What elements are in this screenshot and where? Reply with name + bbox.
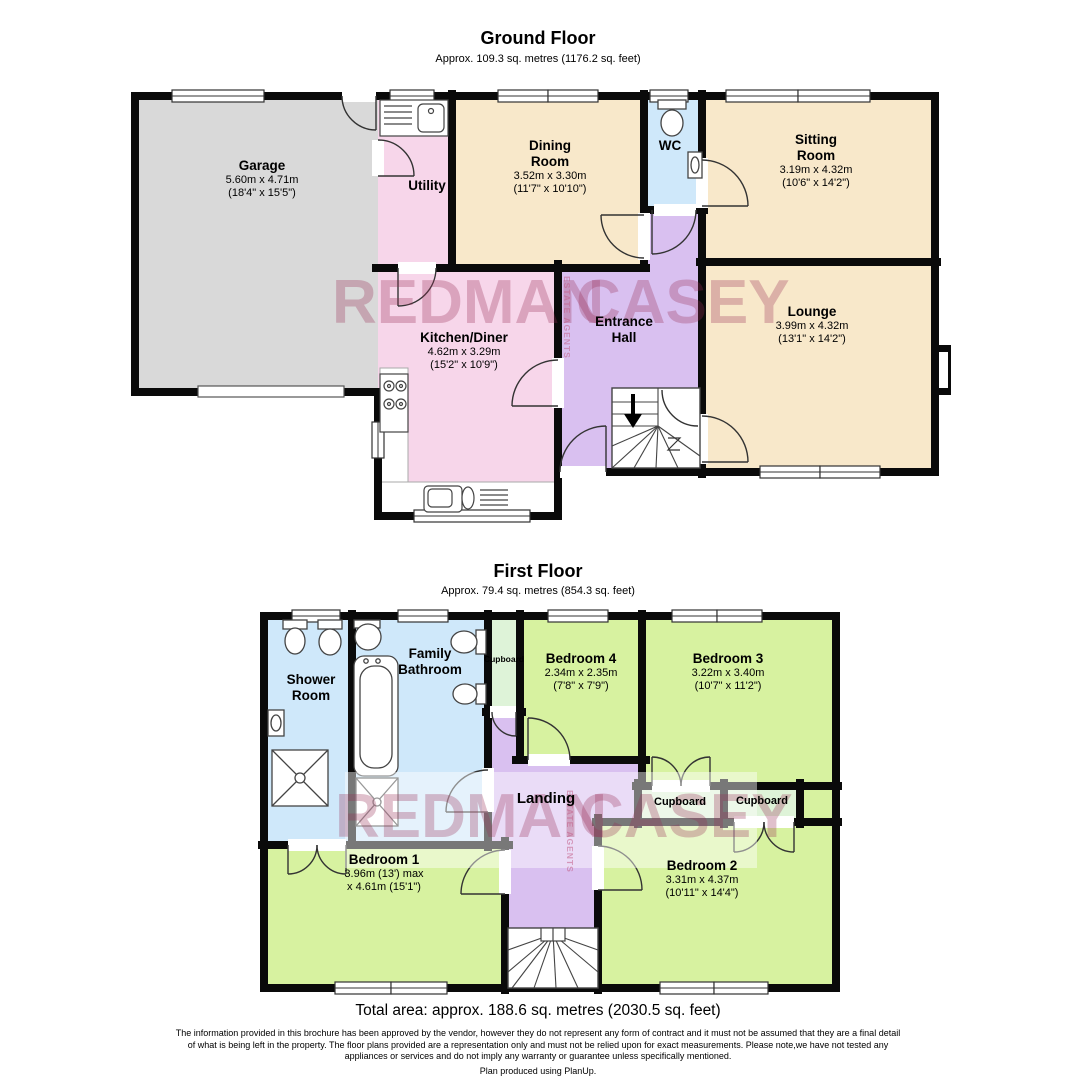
room-label-kitchen-diner: Kitchen/Diner 4.62m x 3.29m (15'2" x 10'…: [420, 330, 508, 372]
room-label-bedroom3: Bedroom 3 3.22m x 3.40m (10'7" x 11'2"): [692, 651, 765, 693]
bedroom2-dim-imperial: (10'11" x 14'4"): [666, 887, 739, 900]
dining-name-1: Dining: [514, 138, 587, 154]
ground-staircase: [612, 388, 700, 468]
shower-name-1: Shower: [287, 672, 336, 688]
garage-name: Garage: [226, 158, 299, 174]
watermark-estate-agents-ground: ESTATE AGENTS: [562, 276, 572, 359]
room-label-bedroom2: Bedroom 2 3.31m x 4.37m (10'11" x 14'4"): [666, 858, 739, 900]
hall-name-2: Hall: [595, 330, 653, 346]
bedroom3-dim-imperial: (10'7" x 11'2"): [692, 680, 765, 693]
ground-floor-subtitle: Approx. 109.3 sq. metres (1176.2 sq. fee…: [435, 53, 640, 65]
room-label-entrance-hall: Entrance Hall: [595, 314, 653, 346]
total-area-text: Total area: approx. 188.6 sq. metres (20…: [355, 1002, 720, 1020]
first-staircase: [508, 928, 598, 988]
bedroom4-dim-imperial: (7'8" x 7'9"): [545, 680, 618, 693]
wc-name: WC: [659, 138, 682, 154]
landing-name: Landing: [517, 790, 575, 808]
garage-dim-metric: 5.60m x 4.71m: [226, 174, 299, 187]
utility-name: Utility: [408, 178, 446, 194]
disclaimer-text: The information provided in this brochur…: [175, 1028, 901, 1063]
room-label-family-bathroom: Family Bathroom: [398, 646, 462, 678]
cupboard-left-name: Cupboard: [654, 796, 706, 809]
garage-door: [198, 386, 344, 397]
dining-dim-metric: 3.52m x 3.30m: [514, 170, 587, 183]
cupboard-right-name: Cupboard: [736, 795, 788, 808]
ground-floor-title: Ground Floor: [481, 28, 596, 49]
bedroom3-dim-metric: 3.22m x 3.40m: [692, 667, 765, 680]
room-label-lounge: Lounge 3.99m x 4.32m (13'1" x 14'2"): [776, 304, 849, 346]
sitting-dim-metric: 3.19m x 4.32m: [780, 164, 853, 177]
bedroom4-dim-metric: 2.34m x 2.35m: [545, 667, 618, 680]
bedroom2-dim-metric: 3.31m x 4.37m: [666, 874, 739, 887]
kitchen-dim-metric: 4.62m x 3.29m: [420, 346, 508, 359]
bedroom4-name: Bedroom 4: [545, 651, 618, 667]
first-floor-subtitle: Approx. 79.4 sq. metres (854.3 sq. feet): [441, 585, 635, 597]
bedroom2-name: Bedroom 2: [666, 858, 739, 874]
sitting-dim-imperial: (10'6" x 14'2"): [780, 177, 853, 190]
dining-name-2: Room: [514, 154, 587, 170]
room-label-cupboard-top: Cupboard: [484, 654, 524, 664]
shower-name-2: Room: [287, 688, 336, 704]
room-label-cupboard-left: Cupboard: [654, 796, 706, 809]
room-label-shower-room: Shower Room: [287, 672, 336, 704]
lounge-dim-imperial: (13'1" x 14'2"): [776, 333, 849, 346]
garage-dim-imperial: (18'4" x 15'5"): [226, 187, 299, 200]
room-label-landing: Landing: [517, 790, 575, 808]
room-label-bedroom1: Bedroom 1 3.96m (13') max x 4.61m (15'1"…: [344, 852, 423, 894]
toilet-icon: [318, 620, 342, 629]
room-label-cupboard-right: Cupboard: [736, 795, 788, 808]
lounge-name: Lounge: [776, 304, 849, 320]
kitchen-dim-imperial: (15'2" x 10'9"): [420, 359, 508, 372]
bedroom3-room: [642, 616, 836, 786]
bedroom2-ext: [800, 786, 836, 822]
kitchen-name: Kitchen/Diner: [420, 330, 508, 346]
bathroom-name-2: Bathroom: [398, 662, 462, 678]
bedroom1-dim-imperial: x 4.61m (15'1"): [344, 881, 423, 894]
cupboard-top-name: Cupboard: [484, 654, 524, 664]
plan-credit-text: Plan produced using PlanUp.: [480, 1066, 597, 1076]
room-label-sitting-room: Sitting Room 3.19m x 4.32m (10'6" x 14'2…: [780, 132, 853, 190]
bedroom3-name: Bedroom 3: [692, 651, 765, 667]
sitting-name-1: Sitting: [780, 132, 853, 148]
first-floor-title: First Floor: [494, 561, 583, 582]
room-label-garage: Garage 5.60m x 4.71m (18'4" x 15'5"): [226, 158, 299, 200]
bedroom1-dim-metric: 3.96m (13') max: [344, 868, 423, 881]
room-label-bedroom4: Bedroom 4 2.34m x 2.35m (7'8" x 7'9"): [545, 651, 618, 693]
hall-name-1: Entrance: [595, 314, 653, 330]
bathroom-name-1: Family: [398, 646, 462, 662]
lounge-dim-metric: 3.99m x 4.32m: [776, 320, 849, 333]
sitting-name-2: Room: [780, 148, 853, 164]
dining-dim-imperial: (11'7" x 10'10"): [514, 183, 587, 196]
chimney-inner: [939, 352, 948, 388]
utility-sink-unit: [380, 100, 448, 136]
room-label-dining-room: Dining Room 3.52m x 3.30m (11'7" x 10'10…: [514, 138, 587, 196]
room-label-utility: Utility: [408, 178, 446, 194]
garage-room: [135, 96, 378, 392]
room-label-wc: WC: [659, 138, 682, 154]
floorplan-page: Ground Floor Approx. 109.3 sq. metres (1…: [0, 0, 1080, 1080]
bedroom1-name: Bedroom 1: [344, 852, 423, 868]
kitchen-hob-icon: [380, 374, 408, 432]
